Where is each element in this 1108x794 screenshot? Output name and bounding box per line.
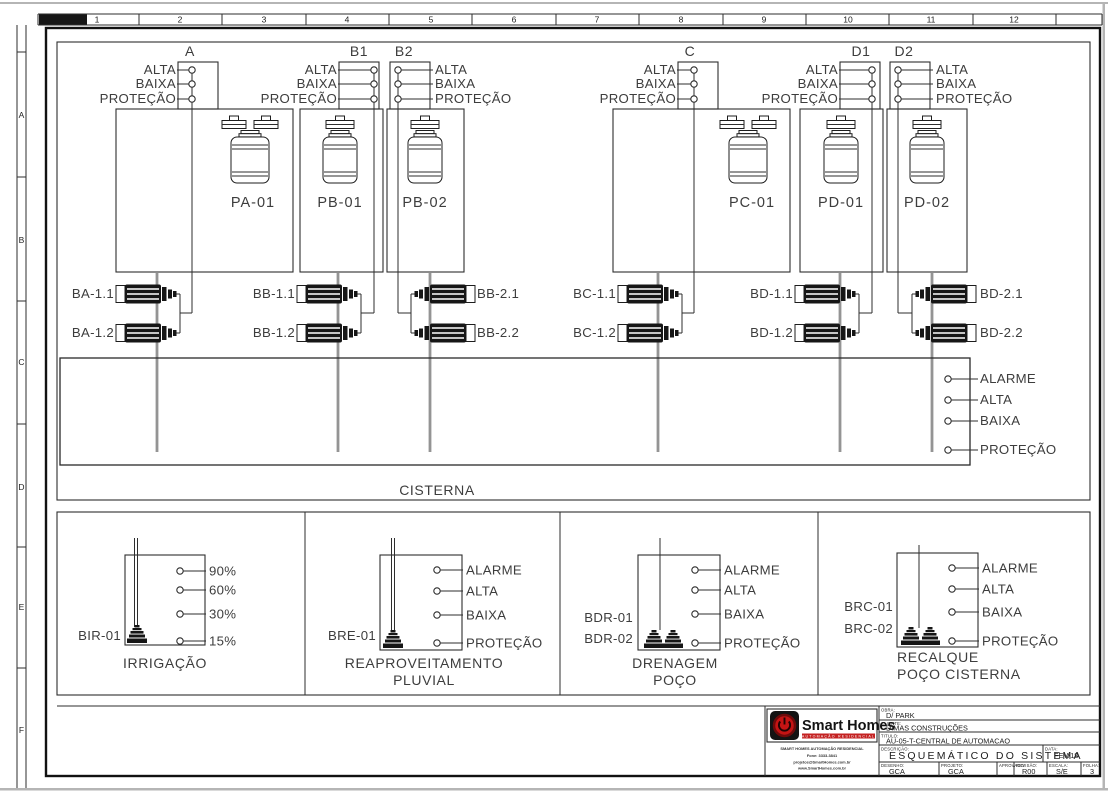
submersible-pump-icon	[127, 625, 147, 643]
ruler-row: A	[19, 110, 25, 120]
port-label: ALTA	[982, 582, 1014, 597]
ruler-col: 7	[595, 15, 600, 25]
port-label: BAIXA	[798, 76, 838, 91]
field-escala: S/E	[1056, 767, 1068, 776]
group-label: B1	[350, 43, 368, 59]
port-label: PROTEÇÃO	[762, 91, 838, 106]
level-label: 30%	[209, 607, 236, 622]
ruler-col: 2	[178, 15, 183, 25]
submersible-pump-icon	[383, 630, 403, 648]
field-cliente: DIMAS CONSTRUÇÕES	[886, 724, 968, 733]
pump-pc-01: PC-01	[720, 116, 776, 211]
company-line: SMART HOMES AUTOMAÇÃO RESIDENCIAL	[780, 746, 864, 751]
port-label: ALTA	[144, 62, 176, 77]
cistern: ALARME ALTA BAIXA PROTEÇÃO CISTERNA	[60, 358, 1056, 498]
ruler-col: 5	[429, 15, 434, 25]
panel-title: POÇO CISTERNA	[897, 666, 1021, 682]
window-edge-top	[0, 2, 1108, 4]
valve-icon	[116, 285, 177, 304]
pump-label: PD-02	[904, 195, 950, 211]
pump-label: PD-01	[818, 195, 864, 211]
port-label: PROTEÇÃO	[936, 91, 1012, 106]
device-label: BRC-01	[844, 599, 893, 614]
port-label: BAIXA	[982, 605, 1022, 620]
pump-icon	[323, 116, 357, 183]
field-data: FEV/18	[1054, 751, 1078, 760]
pump-pd-01: PD-01	[818, 116, 864, 211]
pump-pd-02: PD-02	[904, 116, 950, 211]
schematic-canvas: 1 2 3 4 5 6 7 8 9 10 11 12 A B C D E F A…	[0, 0, 1108, 794]
field-titulo: AU-05-T-CENTRAL DE AUTOMACAO	[886, 737, 1010, 746]
port-label: BAIXA	[636, 76, 676, 91]
drawing-sheet: 1 2 3 4 5 6 7 8 9 10 11 12 A B C D E F A…	[0, 0, 1108, 794]
ruler-row: B	[19, 235, 25, 245]
valve-icon	[618, 324, 679, 343]
field-projeto: GCA	[948, 767, 964, 776]
ruler-row: E	[19, 602, 25, 612]
valve-icon	[116, 324, 177, 343]
ruler-col: 12	[1009, 15, 1019, 25]
valve-pair-bd1: BD-1.1 BD-1.2	[750, 285, 872, 343]
group-label: D2	[894, 43, 913, 59]
system-section-box	[57, 42, 1090, 500]
window-edge-right	[1103, 2, 1106, 790]
ruler-corner-block	[39, 15, 87, 25]
port-label: PROTEÇÃO	[982, 634, 1058, 649]
valve-label: BB-1.2	[253, 325, 295, 340]
pump-label: PC-01	[729, 195, 775, 211]
panel-title: PLUVIAL	[393, 672, 455, 688]
group-label: A	[185, 43, 195, 59]
port-label: ALTA	[724, 583, 756, 598]
port-label: PROTEÇÃO	[466, 636, 542, 651]
panel-title: REAPROVEITAMENTO	[345, 655, 503, 671]
valve-icon	[618, 285, 679, 304]
cistern-port-label: ALTA	[980, 392, 1012, 407]
pump-icon	[824, 116, 858, 183]
port-label: BAIXA	[466, 608, 506, 623]
panel-title: RECALQUE	[897, 649, 979, 665]
title-block: Smart Homes AUTOMAÇÃO RESIDENCIAL SMART …	[57, 706, 1100, 776]
panel-recalque: ALARME ALTA BAIXA PROTEÇÃO BRC-01 BRC-02…	[844, 545, 1058, 682]
device-label: BRC-02	[844, 621, 893, 636]
port-label: PROTEÇÃO	[435, 91, 511, 106]
valve-label: BB-2.2	[477, 325, 519, 340]
field-desenho: GCA	[889, 767, 905, 776]
port-label: PROTEÇÃO	[261, 91, 337, 106]
port-label: PROTEÇÃO	[600, 91, 676, 106]
double-pump-icon	[222, 116, 278, 183]
cistern-port-label: BAIXA	[980, 413, 1020, 428]
port-label: BAIXA	[136, 76, 176, 91]
company-line: projetos@SmartHomes.com.br	[793, 760, 851, 765]
port-label: PROTEÇÃO	[100, 91, 176, 106]
valve-icon	[415, 324, 476, 343]
group-label: B2	[395, 43, 413, 59]
field-folha: 3	[1090, 767, 1094, 776]
pump-icon	[408, 116, 442, 183]
valve-icon	[297, 324, 358, 343]
pump-label: PB-02	[402, 195, 447, 211]
port-label: ALARME	[466, 563, 522, 578]
cistern-port-label: PROTEÇÃO	[980, 442, 1056, 457]
pump-pb-02: PB-02	[402, 116, 447, 211]
submersible-pump-icon	[901, 627, 921, 645]
ruler-row: D	[18, 482, 24, 492]
panel-title: DRENAGEM	[632, 655, 718, 671]
valve-label: BB-1.1	[253, 286, 295, 301]
device-label: BRE-01	[328, 628, 376, 643]
valve-label: BA-1.1	[72, 286, 114, 301]
pump-icon	[910, 116, 944, 183]
ruler-col: 11	[927, 15, 936, 25]
left-ruler: A B C D E F	[17, 25, 26, 788]
device-label: BDR-01	[584, 610, 633, 625]
port-label: BAIXA	[297, 76, 337, 91]
cistern-port-label: ALARME	[980, 371, 1036, 386]
ruler-col: 3	[262, 15, 267, 25]
valve-icon	[297, 285, 358, 304]
port-label: ALTA	[806, 62, 838, 77]
valve-icon	[415, 285, 476, 304]
pump-pa-01: PA-01	[222, 116, 278, 211]
valve-label: BD-1.1	[750, 286, 793, 301]
valve-pair-ba: BA-1.1 BA-1.2	[72, 285, 192, 343]
group-label: D1	[851, 43, 870, 59]
valve-label: BA-1.2	[72, 325, 114, 340]
pump-label: PA-01	[231, 195, 275, 211]
double-pump-icon	[720, 116, 776, 183]
port-label: ALARME	[724, 563, 780, 578]
port-label: ALTA	[305, 62, 337, 77]
valve-pair-bb1: BB-1.1 BB-1.2	[253, 285, 374, 343]
panel-reaproveitamento: ALARME ALTA BAIXA PROTEÇÃO BRE-01 REAPRO…	[328, 538, 542, 688]
valve-label: BC-1.2	[573, 325, 616, 340]
ruler-col: 6	[512, 15, 517, 25]
submersible-pump-icon	[663, 630, 683, 648]
device-label: BIR-01	[78, 628, 121, 643]
level-label: 15%	[209, 634, 236, 649]
pump-pb-01: PB-01	[317, 116, 362, 211]
window-edge-bottom	[0, 788, 1108, 791]
port-label: ALARME	[982, 561, 1038, 576]
valve-icon	[795, 285, 856, 304]
ruler-col: 10	[843, 15, 853, 25]
port-label: BAIXA	[435, 76, 475, 91]
ruler-row: C	[18, 357, 24, 367]
port-label: PROTEÇÃO	[724, 636, 800, 651]
company-line: www.SmartHomes.com.br	[797, 766, 847, 771]
valve-icon	[916, 285, 977, 304]
panel-title: POÇO	[653, 672, 697, 688]
ruler-col: 1	[95, 15, 100, 25]
valve-icon	[916, 324, 977, 343]
field-revisao: R00	[1022, 767, 1035, 776]
ruler-col: 8	[679, 15, 684, 25]
ruler-col: 9	[762, 15, 767, 25]
brand-tagline: AUTOMAÇÃO RESIDENCIAL	[802, 733, 875, 738]
cistern-title: CISTERNA	[399, 482, 475, 498]
pump-label: PB-01	[317, 195, 362, 211]
valve-label: BD-2.2	[980, 325, 1023, 340]
valve-label: BC-1.1	[573, 286, 616, 301]
submersible-pump-icon	[644, 630, 664, 648]
submersible-pump-icon	[920, 627, 940, 645]
port-label: ALTA	[466, 584, 498, 599]
panel-title: IRRIGAÇÃO	[123, 655, 207, 671]
level-label: 60%	[209, 583, 236, 598]
valve-pair-bb2: BB-2.1 BB-2.2	[398, 285, 519, 343]
field-obra: D/ PARK	[886, 711, 915, 720]
port-label: ALTA	[435, 62, 467, 77]
port-label: BAIXA	[936, 76, 976, 91]
valve-pair-bd2: BD-2.1 BD-2.2	[898, 285, 1023, 343]
valve-label: BB-2.1	[477, 286, 519, 301]
valve-label: BD-1.2	[750, 325, 793, 340]
port-label: BAIXA	[724, 607, 764, 622]
ruler-col: 4	[345, 15, 350, 25]
ruler-row: F	[19, 725, 24, 735]
valve-icon	[795, 324, 856, 343]
panel-irrigacao: 90% 60% 30% 15% BIR-01 IRRIGAÇÃO	[78, 538, 236, 671]
group-label: C	[685, 43, 696, 59]
port-label: ALTA	[936, 62, 968, 77]
device-label: BDR-02	[584, 631, 633, 646]
panel-drenagem: ALARME ALTA BAIXA PROTEÇÃO BDR-01 BDR-02…	[584, 538, 800, 688]
level-label: 90%	[209, 564, 236, 579]
company-line: Fone: 3333-3841	[807, 753, 838, 758]
valve-label: BD-2.1	[980, 286, 1023, 301]
top-ruler: 1 2 3 4 5 6 7 8 9 10 11 12	[38, 14, 1102, 25]
port-label: ALTA	[644, 62, 676, 77]
valve-pair-bc: BC-1.1 BC-1.2	[573, 285, 694, 343]
